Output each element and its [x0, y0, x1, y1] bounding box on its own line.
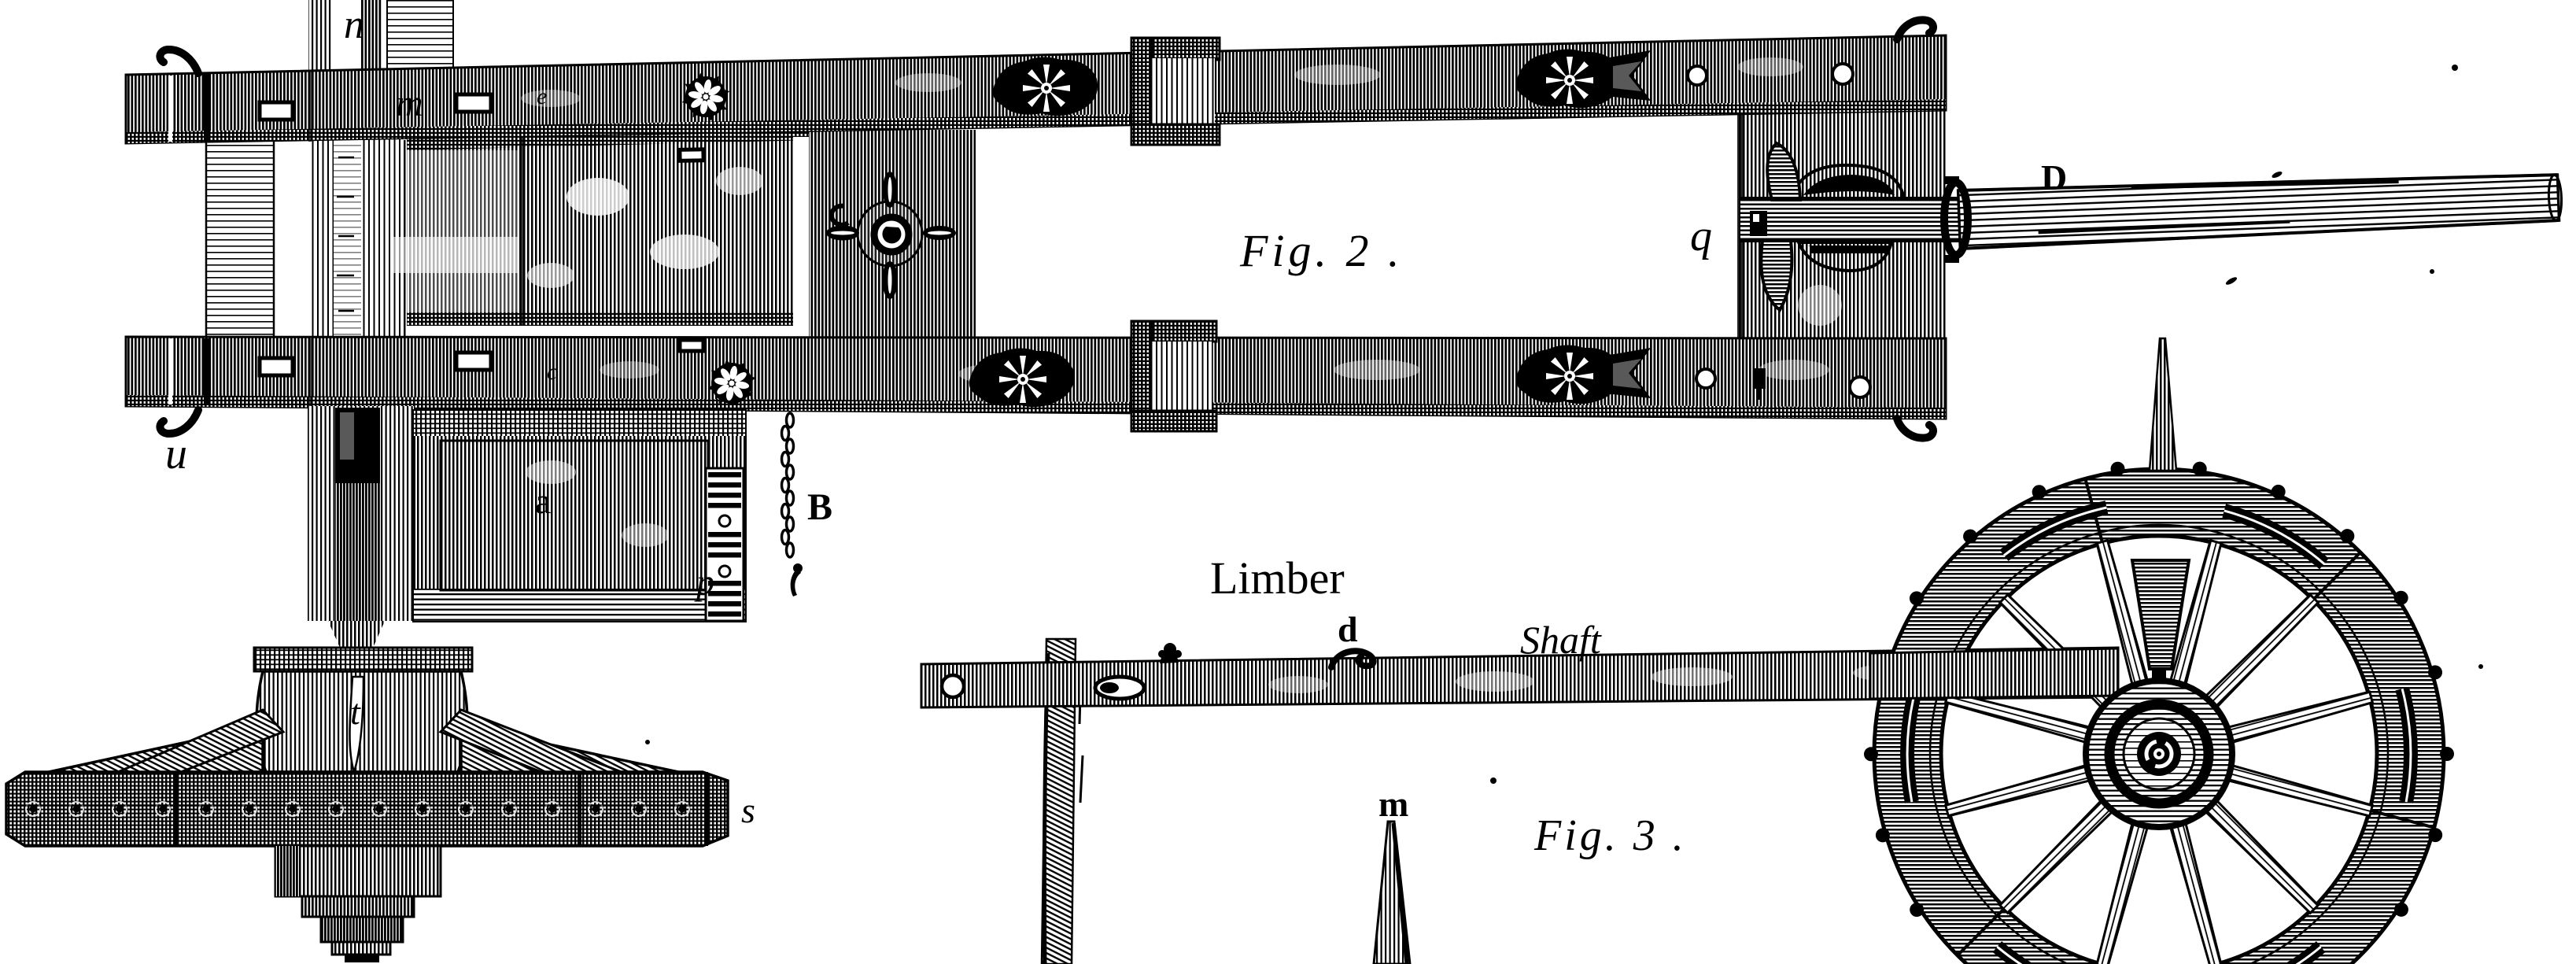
- svg-text:n: n: [344, 2, 364, 47]
- svg-text:B: B: [807, 486, 832, 528]
- svg-text:c: c: [547, 359, 557, 385]
- svg-text:a: a: [535, 481, 551, 521]
- svg-text:s: s: [741, 790, 755, 830]
- svg-text:m: m: [396, 83, 423, 124]
- svg-text:e: e: [537, 83, 547, 109]
- svg-text:t: t: [350, 692, 361, 732]
- svg-text:p: p: [694, 562, 714, 602]
- svg-text:Fig. 3 .: Fig. 3 .: [1533, 811, 1687, 860]
- svg-text:q: q: [1690, 212, 1712, 260]
- svg-text:Limber: Limber: [1210, 552, 1345, 604]
- svg-text:Fig. 2 .: Fig. 2 .: [1239, 225, 1404, 276]
- svg-text:Shaft: Shaft: [1520, 618, 1602, 662]
- svg-text:d: d: [1338, 609, 1358, 649]
- svg-text:u: u: [165, 430, 187, 478]
- svg-text:m: m: [1378, 784, 1408, 824]
- svg-text:D: D: [2041, 157, 2067, 198]
